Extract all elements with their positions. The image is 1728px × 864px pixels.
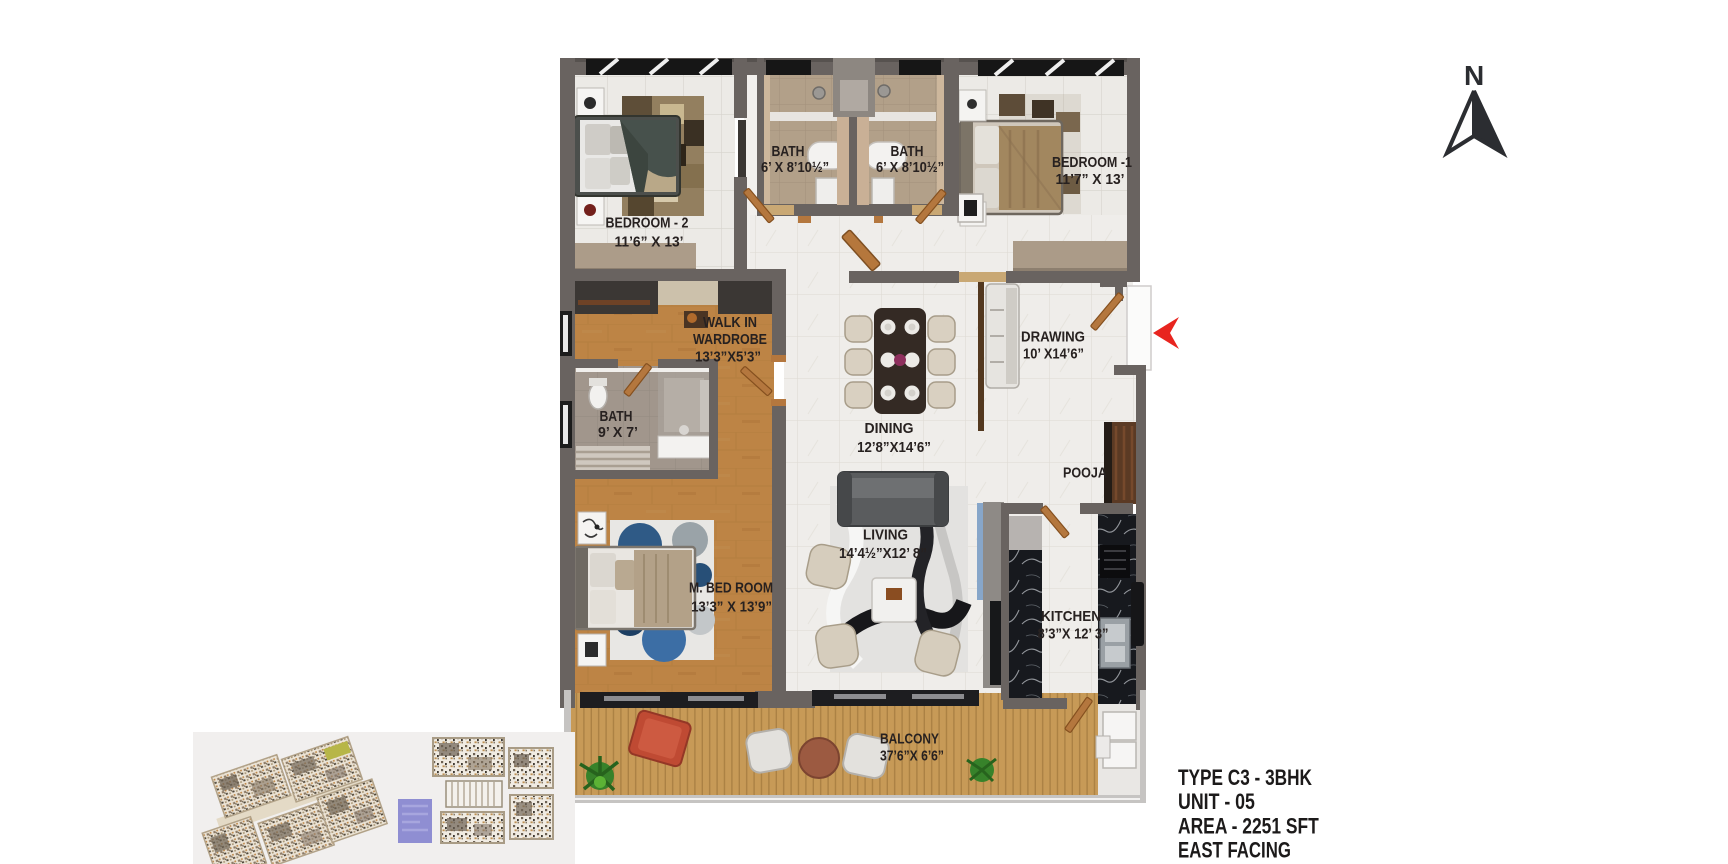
svg-text:8’3”X 12’ 3”: 8’3”X 12’ 3”	[1038, 625, 1109, 642]
svg-text:12’8”X14’6”: 12’8”X14’6”	[857, 439, 931, 456]
svg-text:LIVING: LIVING	[863, 527, 908, 544]
svg-text:10’ X14’6”: 10’ X14’6”	[1023, 345, 1084, 362]
svg-text:DINING: DINING	[865, 421, 914, 438]
svg-text:13’3” X 13’9”: 13’3” X 13’9”	[691, 598, 772, 615]
svg-text:BATH: BATH	[599, 408, 632, 424]
svg-text:BATH: BATH	[771, 143, 804, 159]
svg-text:37’6”X 6’6”: 37’6”X 6’6”	[880, 747, 944, 764]
svg-text:13’3”X5’3”: 13’3”X5’3”	[695, 348, 761, 365]
svg-text:UNIT - 05: UNIT - 05	[1178, 790, 1255, 814]
svg-text:TYPE C3 - 3BHK: TYPE C3 - 3BHK	[1178, 766, 1313, 790]
svg-text:EAST FACING: EAST FACING	[1178, 838, 1291, 863]
svg-text:6’ X 8’10½”: 6’ X 8’10½”	[876, 158, 944, 175]
svg-text:14’4½”X12’ 8”: 14’4½”X12’ 8”	[839, 545, 927, 562]
svg-text:11’7” X 13’: 11’7” X 13’	[1055, 172, 1124, 189]
svg-text:AREA - 2251 SFT: AREA - 2251 SFT	[1178, 815, 1319, 839]
svg-text:WALK IN: WALK IN	[703, 313, 757, 330]
svg-text:11’6” X 13’: 11’6” X 13’	[614, 234, 683, 251]
svg-text:6’ X 8’10½”: 6’ X 8’10½”	[761, 158, 829, 175]
svg-text:N: N	[1464, 60, 1484, 91]
svg-text:M. BED ROOM: M. BED ROOM	[689, 579, 773, 595]
svg-text:DRAWING: DRAWING	[1021, 328, 1085, 345]
svg-text:9’ X 7’: 9’ X 7’	[598, 425, 638, 441]
svg-text:BATH: BATH	[890, 143, 923, 159]
svg-text:POOJA: POOJA	[1063, 463, 1107, 480]
svg-text:BEDROOM -1: BEDROOM -1	[1052, 153, 1132, 170]
svg-text:BEDROOM - 2: BEDROOM - 2	[606, 214, 689, 230]
svg-text:BALCONY: BALCONY	[880, 730, 939, 747]
svg-text:KITCHEN: KITCHEN	[1041, 608, 1101, 625]
svg-text:WARDROBE: WARDROBE	[693, 331, 767, 347]
